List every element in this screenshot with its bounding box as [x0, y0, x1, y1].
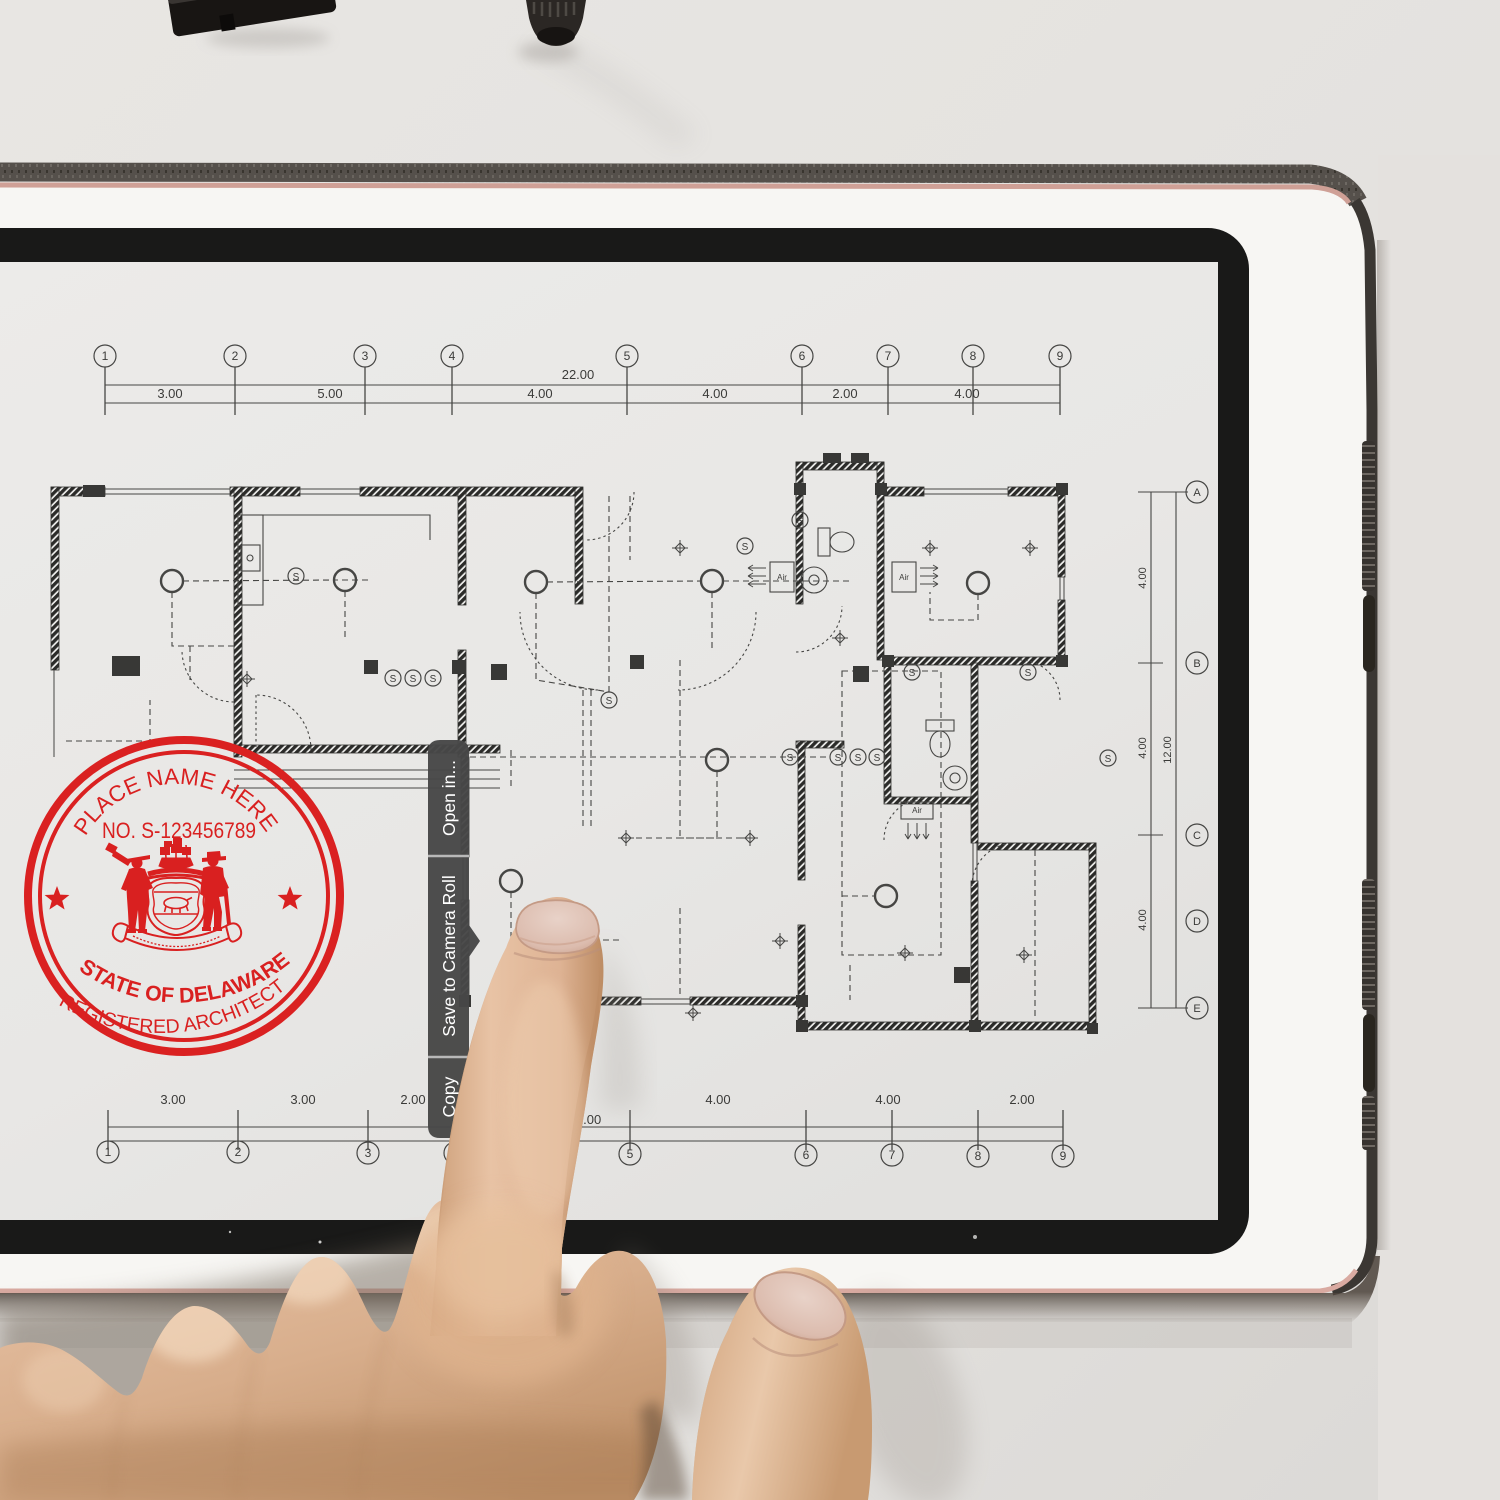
svg-text:S: S — [1025, 668, 1032, 679]
svg-text:E: E — [1193, 1003, 1200, 1015]
svg-text:A: A — [1193, 487, 1201, 499]
svg-text:5: 5 — [627, 1147, 634, 1161]
svg-text:Open in...: Open in... — [439, 760, 459, 836]
svg-text:S: S — [787, 753, 794, 764]
svg-text:S: S — [909, 668, 916, 679]
svg-text:4.00: 4.00 — [702, 386, 727, 401]
svg-text:9: 9 — [1057, 349, 1064, 363]
svg-text:8: 8 — [975, 1149, 982, 1163]
svg-text:4.00: 4.00 — [527, 386, 552, 401]
svg-text:S: S — [874, 753, 881, 764]
svg-text:5.00: 5.00 — [317, 386, 342, 401]
svg-text:3: 3 — [365, 1146, 372, 1160]
svg-text:12.00: 12.00 — [1162, 736, 1174, 764]
svg-text:S: S — [1105, 754, 1112, 765]
svg-text:4.00: 4.00 — [875, 1092, 900, 1107]
svg-text:2.00: 2.00 — [832, 386, 857, 401]
svg-text:Save to Camera Roll: Save to Camera Roll — [439, 875, 459, 1036]
svg-text:2.00: 2.00 — [400, 1092, 425, 1107]
svg-text:2: 2 — [235, 1145, 242, 1159]
svg-text:7: 7 — [885, 349, 892, 363]
svg-text:Air: Air — [912, 806, 922, 815]
svg-text:3.00: 3.00 — [160, 1092, 185, 1107]
svg-text:7: 7 — [889, 1148, 896, 1162]
svg-text:C: C — [1193, 830, 1201, 842]
svg-text:1: 1 — [102, 349, 109, 363]
svg-text:3: 3 — [362, 349, 369, 363]
svg-text:S: S — [606, 696, 613, 707]
svg-text:S: S — [430, 674, 437, 685]
svg-text:1: 1 — [105, 1145, 112, 1159]
svg-text:4.00: 4.00 — [705, 1092, 730, 1107]
svg-text:4.00: 4.00 — [1137, 737, 1149, 758]
svg-text:S: S — [742, 542, 749, 553]
svg-text:3.00: 3.00 — [157, 386, 182, 401]
svg-text:2: 2 — [232, 349, 239, 363]
svg-text:Air: Air — [899, 573, 909, 582]
svg-text:B: B — [1193, 658, 1200, 670]
svg-text:3.00: 3.00 — [290, 1092, 315, 1107]
svg-text:22.00: 22.00 — [562, 367, 595, 382]
svg-text:S: S — [410, 674, 417, 685]
svg-text:S: S — [293, 572, 300, 583]
svg-text:S: S — [835, 753, 842, 764]
svg-text:4.00: 4.00 — [1137, 909, 1149, 930]
svg-text:2.00: 2.00 — [1009, 1092, 1034, 1107]
svg-text:6: 6 — [799, 349, 806, 363]
svg-text:4.00: 4.00 — [954, 386, 979, 401]
svg-text:S: S — [797, 516, 804, 527]
svg-text:6: 6 — [803, 1148, 810, 1162]
svg-text:S: S — [855, 753, 862, 764]
svg-text:D: D — [1193, 916, 1201, 928]
svg-text:S: S — [390, 674, 397, 685]
svg-text:8: 8 — [970, 349, 977, 363]
svg-text:5: 5 — [624, 349, 631, 363]
svg-text:9: 9 — [1060, 1149, 1067, 1163]
svg-text:4.00: 4.00 — [1137, 567, 1149, 588]
svg-text:4: 4 — [449, 349, 456, 363]
